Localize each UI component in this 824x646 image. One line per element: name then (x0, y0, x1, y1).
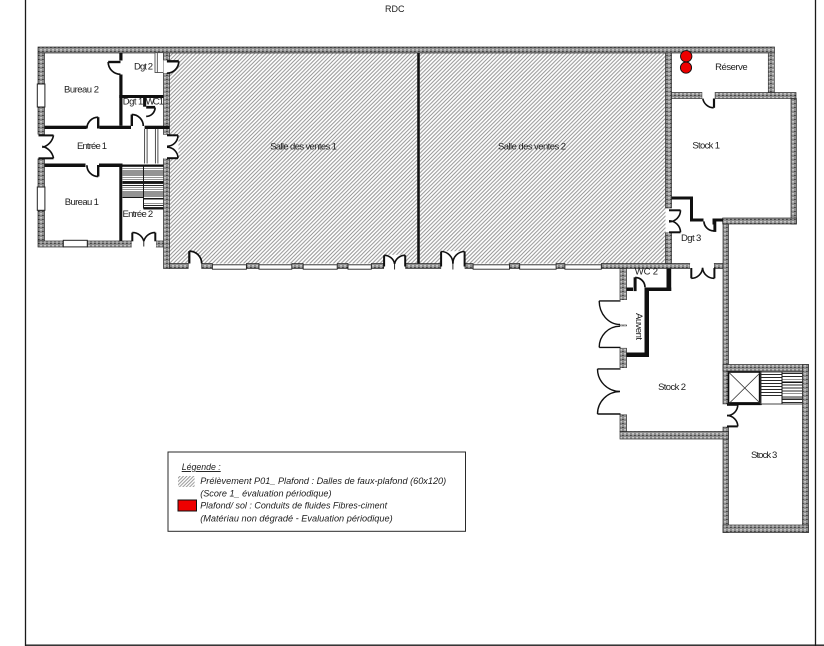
svg-text:(Matériau non dégradé - Evalua: (Matériau non dégradé - Evaluation pério… (200, 513, 393, 524)
svg-text:Légende :: Légende : (182, 462, 221, 473)
svg-text:(Score 1_ évaluation périodiqu: (Score 1_ évaluation périodique) (200, 489, 331, 500)
svg-text:Bureau 2: Bureau 2 (64, 84, 99, 95)
svg-text:Bureau 1: Bureau 1 (65, 197, 99, 208)
svg-text:Salle des ventes 1: Salle des ventes 1 (270, 141, 337, 152)
svg-text:Stock 2: Stock 2 (658, 382, 686, 393)
svg-text:Entrée 2: Entrée 2 (123, 209, 154, 220)
svg-text:WC 2: WC 2 (635, 266, 658, 277)
svg-text:Prélèvement P01_ Plafond : Dal: Prélèvement P01_ Plafond : Dalles de fau… (200, 476, 446, 487)
svg-text:Auvent: Auvent (633, 313, 644, 340)
svg-text:Stock 3: Stock 3 (751, 450, 777, 461)
svg-text:Dgt 3: Dgt 3 (681, 233, 701, 244)
svg-text:Dgt 1: Dgt 1 (123, 97, 144, 108)
svg-text:Stock 1: Stock 1 (692, 141, 720, 152)
svg-text:WC 1: WC 1 (146, 97, 165, 108)
svg-text:Salle des ventes 2: Salle des ventes 2 (498, 141, 566, 152)
svg-text:Entrée 1: Entrée 1 (77, 141, 107, 152)
svg-text:Plafond/ sol : Conduits de flu: Plafond/ sol : Conduits de fluides Fibre… (200, 501, 387, 512)
svg-text:RDC: RDC (385, 4, 405, 14)
svg-text:Dgt 2: Dgt 2 (134, 62, 153, 73)
svg-text:Réserve: Réserve (715, 62, 748, 73)
